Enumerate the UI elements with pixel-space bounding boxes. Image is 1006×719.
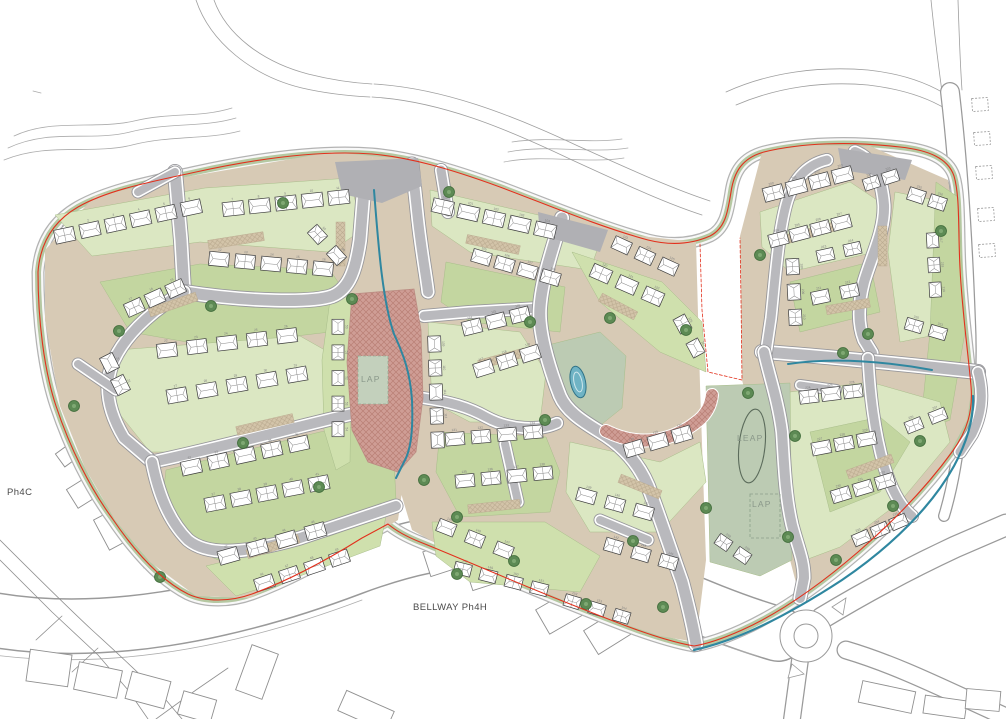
tree-crown-highlight bbox=[422, 478, 426, 482]
plot-number: 22 bbox=[164, 339, 168, 343]
plot-number: 50 bbox=[345, 325, 349, 329]
plot-number: 51 bbox=[345, 351, 349, 355]
plot-number: 110 bbox=[442, 365, 446, 370]
existing-track-line bbox=[931, 0, 942, 92]
tree-crown-highlight bbox=[117, 329, 121, 333]
existing-track-line bbox=[214, 0, 372, 84]
layby-marking bbox=[974, 131, 991, 145]
plot-number: 13 bbox=[244, 250, 248, 254]
plot-number: 25 bbox=[254, 328, 258, 332]
existing-building-outline bbox=[236, 645, 279, 700]
plot-number: 52 bbox=[345, 376, 349, 380]
plot-number: 217 bbox=[939, 237, 943, 243]
contour-line bbox=[8, 118, 236, 148]
layby-marking bbox=[976, 165, 993, 179]
plot-number: 12 bbox=[218, 248, 222, 252]
plot-number: 226 bbox=[849, 380, 855, 385]
plot-number: 138 bbox=[539, 462, 545, 467]
plot-number: 24 bbox=[224, 331, 228, 335]
tree-crown-highlight bbox=[939, 229, 943, 233]
contour-line bbox=[508, 148, 628, 152]
tree-crown-highlight bbox=[350, 297, 354, 301]
tree-crown-highlight bbox=[241, 441, 245, 445]
layby-marking bbox=[972, 97, 989, 111]
existing-track-line bbox=[736, 84, 946, 109]
contour-line bbox=[4, 131, 240, 160]
tree-crown-highlight bbox=[543, 418, 547, 422]
plot-number: 218 bbox=[940, 262, 944, 268]
plot-number: 53 bbox=[345, 402, 349, 406]
plot-number: 209 bbox=[801, 289, 805, 295]
existing-track-line bbox=[196, 0, 370, 97]
plot-number: 23 bbox=[194, 335, 198, 339]
plot-number: 15 bbox=[296, 255, 300, 259]
plot-number: 136 bbox=[487, 467, 493, 472]
contour-line bbox=[14, 108, 232, 136]
plot-number: 225 bbox=[827, 383, 833, 388]
tree-crown-highlight bbox=[584, 602, 588, 606]
tree-crown-highlight bbox=[704, 506, 708, 510]
tree-crown-highlight bbox=[834, 558, 838, 562]
masterplan-canvas: 1234567891011121314151617181920212223242… bbox=[0, 0, 1006, 719]
plot-number: 11 bbox=[336, 186, 340, 190]
tree-crown-highlight bbox=[512, 559, 516, 563]
site-plan-drawing: 1234567891011121314151617181920212223242… bbox=[0, 0, 1006, 719]
plot-number: 10 bbox=[309, 189, 313, 193]
tree-crown-highlight bbox=[209, 304, 213, 308]
tree-crown-highlight bbox=[455, 515, 459, 519]
tree-crown-highlight bbox=[608, 316, 612, 320]
plot-number: 111 bbox=[443, 389, 447, 394]
tree-crown-highlight bbox=[746, 391, 750, 395]
internal-boundary-dashed bbox=[700, 238, 742, 380]
existing-track-line bbox=[726, 69, 950, 97]
plot-number: 132 bbox=[477, 425, 483, 429]
existing-building-outline bbox=[177, 691, 216, 719]
tree-crown-highlight bbox=[631, 539, 635, 543]
plot-number: 14 bbox=[270, 252, 274, 256]
plot-number: 224 bbox=[805, 385, 811, 390]
layby-marking bbox=[979, 243, 996, 257]
plot-number: 219 bbox=[942, 286, 946, 292]
tree-crown-highlight bbox=[317, 485, 321, 489]
plot-number: 109 bbox=[441, 341, 445, 347]
plot-number: 131 bbox=[451, 428, 457, 432]
tree-crown-highlight bbox=[281, 201, 285, 205]
plot-number: 134 bbox=[529, 421, 535, 425]
lap-square bbox=[358, 356, 388, 404]
tree-crown-highlight bbox=[72, 404, 76, 408]
tree-crown-highlight bbox=[528, 320, 532, 324]
tree-crown-highlight bbox=[793, 434, 797, 438]
plot-number: 133 bbox=[503, 423, 509, 427]
plot-number: 16 bbox=[322, 257, 326, 261]
tree-crown-highlight bbox=[684, 328, 688, 332]
existing-building-outline bbox=[338, 690, 394, 719]
contour-line bbox=[33, 91, 41, 93]
tree-crown-highlight bbox=[866, 332, 870, 336]
existing-building-outline bbox=[965, 689, 1001, 712]
plot-number: 54 bbox=[345, 427, 349, 431]
tree-crown-highlight bbox=[918, 439, 922, 443]
tree-crown-highlight bbox=[661, 605, 665, 609]
layby-marking bbox=[978, 207, 995, 221]
tree-crown-highlight bbox=[841, 351, 845, 355]
tree-crown-highlight bbox=[447, 190, 451, 194]
plot-number: 26 bbox=[284, 324, 288, 328]
plot-number: 208 bbox=[800, 263, 804, 269]
existing-building-outline bbox=[125, 671, 171, 708]
tree-crown-highlight bbox=[455, 572, 459, 576]
existing-building-outline bbox=[858, 681, 915, 714]
plot-number: 210 bbox=[802, 314, 806, 320]
driveway-hatch bbox=[878, 226, 887, 266]
roundabout-island bbox=[794, 624, 818, 648]
tree-crown-highlight bbox=[786, 535, 790, 539]
tree-crown-highlight bbox=[758, 253, 762, 257]
tree-crown-highlight bbox=[891, 504, 895, 508]
plot-number: 137 bbox=[513, 465, 519, 470]
plot-number: 112 bbox=[444, 413, 448, 418]
existing-building-outline bbox=[74, 662, 123, 699]
plot-number: 135 bbox=[461, 470, 467, 475]
existing-building-outline bbox=[26, 649, 72, 687]
existing-track-line bbox=[958, 0, 962, 90]
